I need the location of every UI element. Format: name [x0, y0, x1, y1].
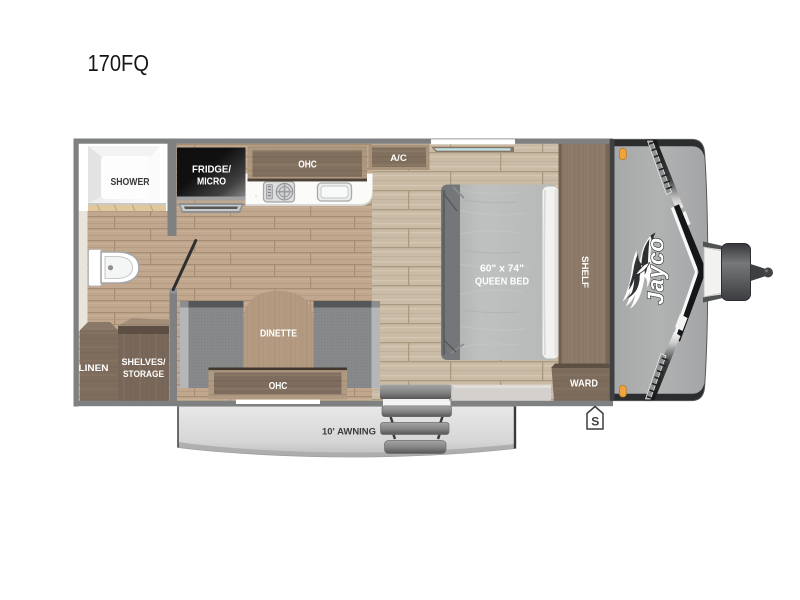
svg-text:STORAGE: STORAGE	[123, 369, 164, 380]
svg-text:LINEN: LINEN	[79, 363, 109, 374]
svg-text:Jayco: Jayco	[643, 237, 669, 305]
svg-text:WARD: WARD	[570, 379, 598, 390]
svg-text:OHC: OHC	[298, 160, 317, 171]
svg-text:60" x 74": 60" x 74"	[480, 264, 524, 275]
svg-text:S: S	[591, 415, 599, 429]
svg-text:A/C: A/C	[390, 153, 407, 164]
svg-text:FRIDGE/: FRIDGE/	[192, 165, 231, 176]
svg-text:SHELF: SHELF	[580, 256, 590, 288]
svg-text:QUEEN BED: QUEEN BED	[475, 277, 529, 288]
svg-text:DINETTE: DINETTE	[260, 328, 297, 340]
svg-text:170FQ: 170FQ	[88, 50, 150, 76]
svg-text:SHELVES/: SHELVES/	[122, 357, 166, 368]
svg-text:OHC: OHC	[269, 381, 288, 392]
svg-text:SHOWER: SHOWER	[111, 176, 150, 188]
svg-text:MICRO: MICRO	[197, 177, 226, 188]
svg-text:10' AWNING: 10' AWNING	[322, 427, 376, 438]
